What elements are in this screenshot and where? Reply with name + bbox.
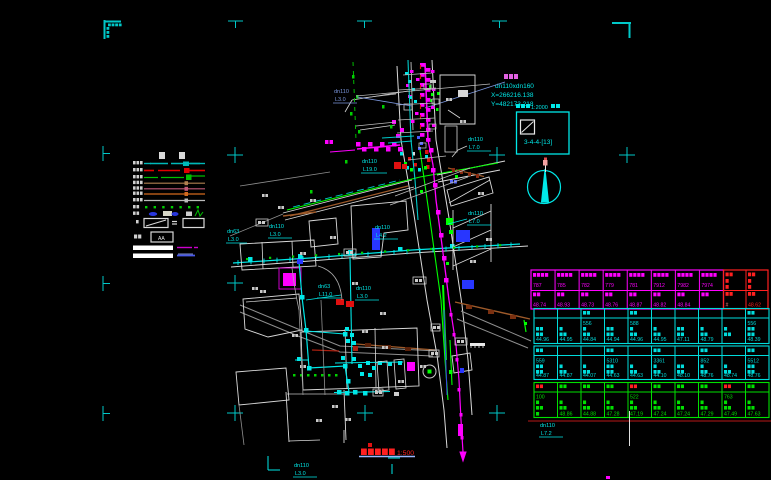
svg-text:48.87: 48.87: [629, 303, 642, 309]
svg-text:L7.2: L7.2: [541, 431, 552, 437]
svg-text:47.24: 47.24: [677, 412, 690, 418]
svg-text:48.74: 48.74: [724, 373, 737, 379]
svg-text:L3.0: L3.0: [357, 294, 368, 300]
svg-text:44.94: 44.94: [607, 337, 620, 343]
svg-text:dn110xdn160: dn110xdn160: [495, 83, 534, 90]
svg-text:100: 100: [536, 395, 545, 401]
svg-text:44.88: 44.88: [583, 412, 596, 418]
svg-text:588: 588: [630, 321, 639, 327]
svg-text:dn110: dn110: [540, 423, 555, 429]
svg-text:48.74: 48.74: [533, 303, 546, 309]
svg-text:781: 781: [629, 283, 638, 289]
svg-text:X=266216.138: X=266216.138: [491, 92, 534, 99]
svg-text:dn63: dn63: [318, 284, 330, 290]
svg-text:556: 556: [748, 321, 757, 327]
svg-text:779: 779: [605, 283, 614, 289]
svg-text:dn110: dn110: [294, 463, 309, 469]
svg-text:48.73: 48.73: [581, 303, 594, 309]
svg-text:44.95: 44.95: [560, 337, 573, 343]
svg-text:47.49: 47.49: [724, 412, 737, 418]
svg-text:dn63: dn63: [227, 229, 239, 235]
svg-text:L4.2: L4.2: [376, 233, 387, 239]
svg-text:L7.0: L7.0: [469, 219, 480, 225]
svg-text:3-4-4-[13]: 3-4-4-[13]: [524, 139, 552, 146]
svg-text:852: 852: [701, 359, 710, 365]
svg-text:48.79: 48.79: [701, 337, 714, 343]
svg-text:dn110: dn110: [334, 89, 349, 95]
svg-text:44.96: 44.96: [630, 337, 643, 343]
svg-text:522: 522: [630, 395, 639, 401]
svg-text:7912: 7912: [653, 283, 665, 289]
svg-text:5310: 5310: [607, 359, 619, 365]
svg-text:47.63: 47.63: [748, 412, 761, 418]
svg-text:48.76: 48.76: [748, 373, 761, 379]
svg-text:L3.0: L3.0: [335, 97, 346, 103]
svg-text:48.10: 48.10: [677, 373, 690, 379]
svg-text:44.63: 44.63: [607, 373, 620, 379]
svg-text:48.84: 48.84: [677, 303, 690, 309]
svg-text:47.29: 47.29: [701, 412, 714, 418]
svg-text:dn110: dn110: [375, 225, 390, 231]
svg-text:7974: 7974: [701, 283, 713, 289]
svg-text:L19.0: L19.0: [363, 167, 377, 173]
svg-text:47.24: 47.24: [654, 412, 667, 418]
svg-text:7982: 7982: [677, 283, 689, 289]
svg-text:#: #: [726, 303, 729, 309]
svg-text:44.87: 44.87: [560, 373, 573, 379]
svg-text:dn110: dn110: [362, 159, 377, 165]
svg-text:44.63: 44.63: [630, 373, 643, 379]
svg-text:47.11: 47.11: [677, 337, 690, 343]
svg-text:44.07: 44.07: [583, 373, 596, 379]
svg-text:556: 556: [583, 321, 592, 327]
svg-text:48.76: 48.76: [701, 373, 714, 379]
svg-text:1:2000: 1:2000: [531, 105, 548, 111]
svg-text:3361: 3361: [654, 359, 666, 365]
svg-text:44.87: 44.87: [536, 373, 549, 379]
svg-text:782: 782: [581, 283, 590, 289]
svg-text:48.86: 48.86: [560, 412, 573, 418]
svg-text:L3.0: L3.0: [228, 237, 239, 243]
svg-text:559: 559: [536, 359, 545, 365]
svg-text:48.62: 48.62: [748, 303, 761, 309]
svg-text:763: 763: [724, 395, 733, 401]
svg-text:L3.0: L3.0: [295, 471, 306, 477]
svg-text:47.19: 47.19: [630, 412, 643, 418]
svg-text:dn110: dn110: [269, 224, 284, 230]
svg-text:48.93: 48.93: [557, 303, 570, 309]
svg-text:48.39: 48.39: [748, 337, 761, 343]
svg-text:787: 787: [533, 283, 542, 289]
svg-text:785: 785: [557, 283, 566, 289]
svg-text:dn110: dn110: [468, 137, 483, 143]
svg-text:44.10: 44.10: [654, 373, 667, 379]
svg-text:L3.0: L3.0: [270, 232, 281, 238]
svg-text:5512: 5512: [748, 359, 760, 365]
svg-text:44.95: 44.95: [654, 337, 667, 343]
svg-text:dn110: dn110: [468, 211, 483, 217]
svg-text:AA: AA: [158, 236, 165, 242]
svg-text:48.82: 48.82: [653, 303, 666, 309]
svg-text:48.76: 48.76: [605, 303, 618, 309]
svg-text:44.84: 44.84: [583, 337, 596, 343]
svg-text:L7.0: L7.0: [469, 145, 480, 151]
svg-text:44.96: 44.96: [536, 337, 549, 343]
svg-text:dn110: dn110: [356, 286, 371, 292]
svg-text:47.28: 47.28: [607, 412, 620, 418]
